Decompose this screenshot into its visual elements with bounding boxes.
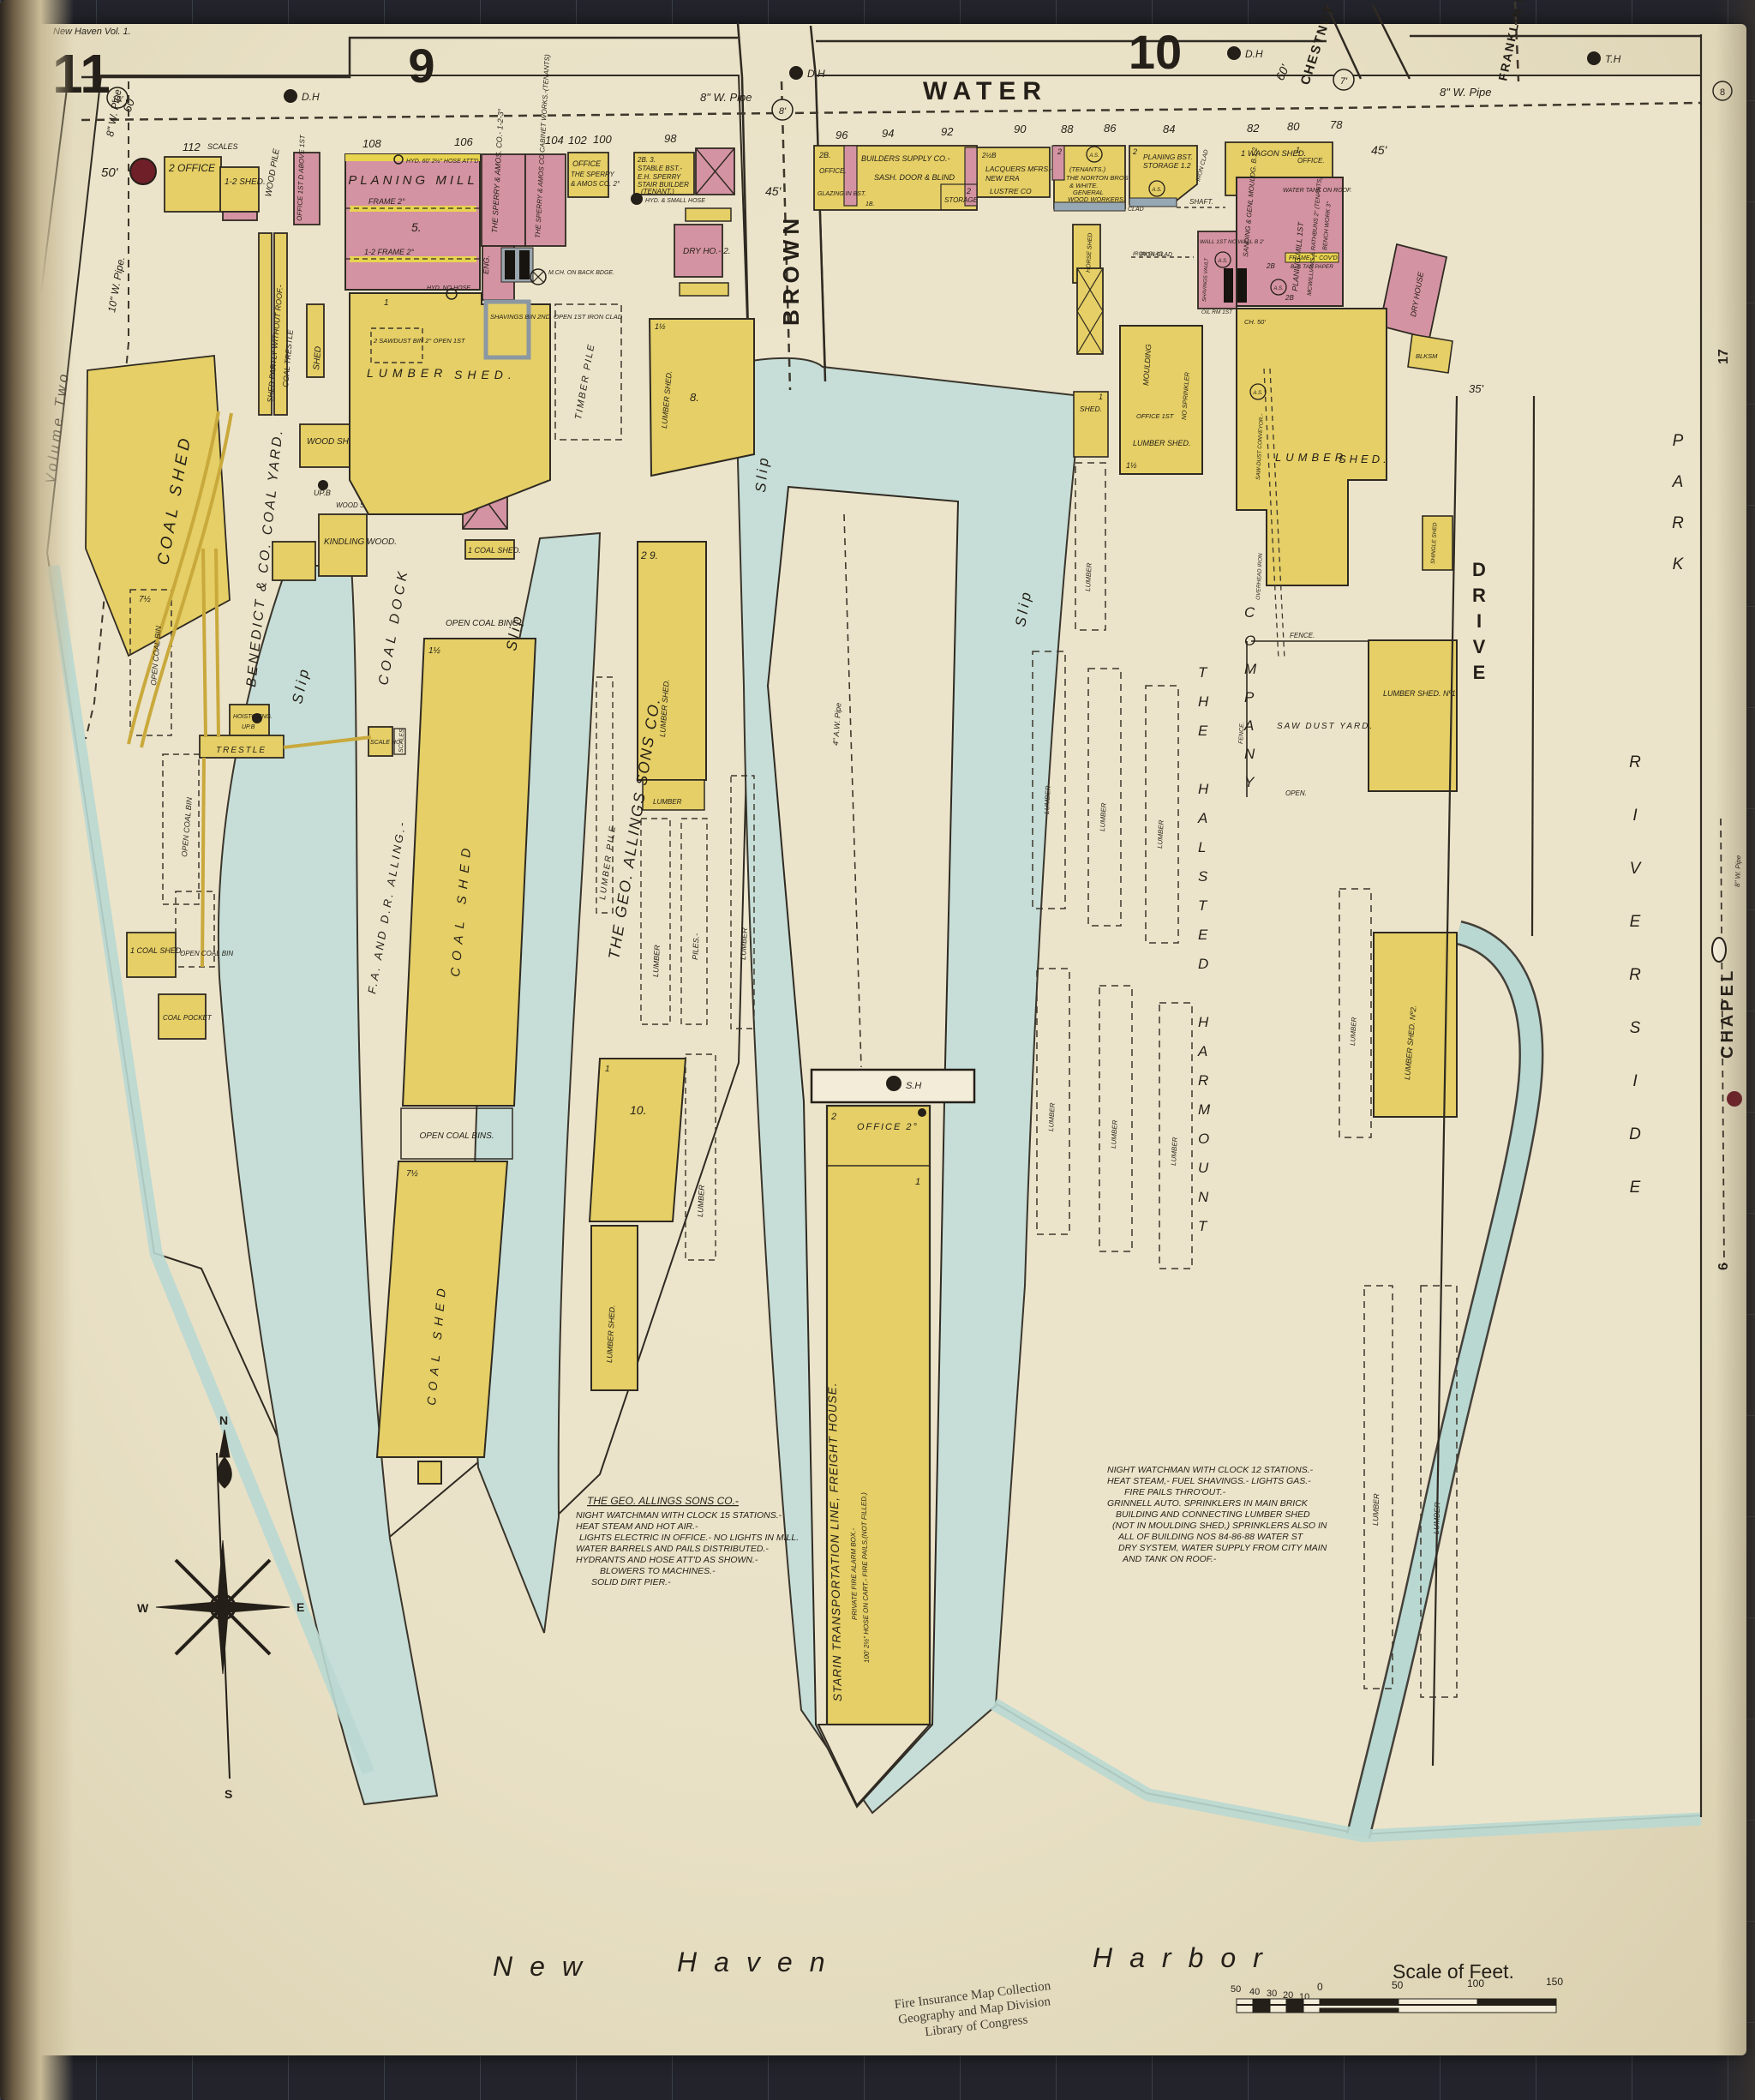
benedict-shed (220, 167, 259, 212)
label: STORAGE 1.2 (1143, 161, 1191, 170)
label: LUMBER SHED. (1133, 439, 1191, 447)
compass-w: W (137, 1601, 149, 1615)
label: LUMBER (653, 798, 682, 806)
label: STORAGE (944, 196, 979, 204)
house-number: 98 (664, 132, 677, 145)
sh-label: S.H (906, 1081, 921, 1091)
label: 1 (384, 298, 389, 308)
house-number: 90 (1014, 123, 1027, 135)
slip-head-shed (273, 542, 315, 580)
label: COAL POCKET (163, 1014, 213, 1022)
house-number: 108 (362, 137, 381, 150)
label: 1½ (1126, 461, 1137, 470)
note-line: GRINNELL AUTO. SPRINKLERS IN MAIN BRICK (1107, 1498, 1309, 1509)
shed-10 (590, 1059, 686, 1221)
label: OFFICE. (1297, 157, 1325, 165)
iron-clad-band-1 (1054, 202, 1125, 211)
label: BUILDERS SUPPLY CO.- (861, 154, 950, 163)
house-number: 82 (1247, 122, 1260, 135)
label: IRON CLAD (1133, 251, 1164, 257)
brown-label: BROWN (778, 213, 804, 326)
label: LUMBER (367, 366, 447, 380)
label: 5. (411, 220, 422, 234)
scale-tick: 40 (1249, 1987, 1260, 1997)
map-canvas: 9 10 WATER 8" W. Pipe 8" W. Pipe D.H D.H… (0, 0, 1755, 2100)
label: OPEN COAL BIN (180, 950, 233, 957)
note-line: NIGHT WATCHMAN WITH CLOCK 15 STATIONS.- (576, 1510, 782, 1521)
label: 2½B (981, 152, 997, 159)
benchmark-circle (130, 159, 156, 184)
house-number: 106 (454, 135, 473, 148)
harbor-label: New Haven Harbor (493, 1942, 1279, 1982)
label: NEW ERA (985, 174, 1020, 183)
label: LUMBER (1371, 1493, 1381, 1526)
label: GLAZING IN BST. (818, 191, 866, 197)
label: SHAVINGS BIN 2ND. OPEN 1ST IRON CLAD (490, 313, 623, 321)
scale-bar-cells (1237, 1999, 1556, 2013)
label: KINDLING WOOD. (324, 537, 397, 547)
small-shed (1074, 392, 1108, 457)
label: LUSTRE CO (990, 187, 1032, 195)
label: 2 (1057, 147, 1062, 156)
hydrant-dh-3-label: D.H (1245, 48, 1263, 60)
label: LACQUERS MFRS.- (985, 165, 1053, 173)
label: LUMBER (1043, 785, 1052, 814)
note-line: BLOWERS TO MACHINES.- (600, 1566, 716, 1576)
house-number: 92 (941, 125, 954, 138)
label: SCALES (207, 142, 238, 151)
label: SCALE HO. (370, 740, 402, 746)
house-number: 84 (1163, 123, 1175, 135)
label: DRY HO.- 2. (683, 247, 731, 256)
label: E.H. SPERRY (638, 173, 681, 181)
label: OFFICE (572, 159, 602, 168)
note-line: AND TANK ON ROOF.- (1122, 1554, 1217, 1564)
note-line: HEAT STEAM,- FUEL SHAVINGS.- LIGHTS GAS.… (1107, 1476, 1311, 1486)
hoist-engine (230, 705, 269, 735)
label: LUMBER (1084, 562, 1093, 591)
as-circle: A.S. (1151, 188, 1161, 193)
label: 1 COAL SHED. (130, 946, 183, 955)
label: WALL 1ST NO WALL B 2' (1200, 239, 1265, 245)
label: & AMOS CO. 2° (571, 180, 620, 188)
scale-tick: 150 (1546, 1976, 1563, 1988)
label: LUMBER (1275, 451, 1347, 464)
label: 7½ (139, 595, 152, 604)
label: FRAME 3° COV'D (1289, 255, 1338, 261)
label: 2 9. (640, 549, 658, 561)
scale-tick: 50 (1231, 1984, 1241, 1995)
label: LUMBER (739, 927, 749, 960)
label: 1 (915, 1177, 920, 1187)
label: 1½ (428, 646, 441, 656)
label: LUMBER (1349, 1017, 1358, 1046)
label: 2B (1266, 262, 1275, 270)
note-line: BUILDING AND CONNECTING LUMBER SHED (1116, 1509, 1310, 1520)
hydrant-dh-1 (284, 89, 297, 103)
label: LUMBER (1110, 1119, 1119, 1149)
label: THE NORTON BROS (1066, 174, 1129, 182)
label: 2 (830, 1112, 836, 1122)
sperry-bldg-1 (482, 154, 525, 246)
scale-bar: Scale of Feet. 50 40 30 20 10 0 50 100 1… (1231, 1960, 1563, 2013)
label: (TENANT.) (641, 188, 674, 195)
label: 8. (690, 391, 699, 404)
house-number: 86 (1104, 122, 1117, 135)
benedict-shed-annex (223, 212, 257, 220)
label: 2 (1132, 147, 1137, 156)
width-45-brown: 45' (765, 184, 782, 198)
label: LUMBER (1099, 802, 1108, 831)
label: 35' (1469, 382, 1483, 395)
note-line: (NOT IN MOULDING SHED,) SPRINKLERS ALSO … (1112, 1521, 1327, 1531)
label: WOOD WORKERS. (1068, 195, 1125, 203)
as-circle: A.S. (1217, 259, 1227, 264)
pipe-label-water-1: 8" W. Pipe (700, 91, 752, 104)
pipe-label-water-2: 8" W. Pipe (1440, 86, 1492, 99)
label: OFFICE 2° (857, 1122, 919, 1132)
note-line: ALL OF BUILDING NOS 84-86-88 WATER ST (1117, 1532, 1304, 1542)
label: (TENANTS.) (1069, 165, 1106, 173)
label: THE SPERRY (571, 171, 614, 178)
water-street-label: WATER (923, 77, 1048, 105)
section-number-right: 10 (1129, 25, 1182, 79)
label: TRESTLE (216, 746, 267, 755)
scale-tick: 30 (1267, 1989, 1277, 1999)
label: HYD. 60' 2½" HOSE ATT'D (406, 158, 479, 165)
label: PLANING MILL (348, 173, 477, 188)
label: 1 (1296, 146, 1300, 154)
compass-n: N (219, 1413, 228, 1427)
sperry-bldg-2 (525, 154, 566, 246)
strip-shed-2 (680, 283, 728, 296)
label: PLANING BST. (1143, 153, 1193, 161)
note-line: NIGHT WATCHMAN WITH CLOCK 12 STATIONS.- (1107, 1465, 1314, 1475)
label: 10. (630, 1103, 646, 1117)
page-curl-shadow (1716, 0, 1755, 2100)
scale-title: Scale of Feet. (1393, 1960, 1514, 1983)
label: 1 COAL SHED. (468, 546, 521, 555)
scale-tick: 100 (1467, 1977, 1484, 1989)
main-size-7-label: 7' (1340, 76, 1348, 87)
label: STABLE BST.- (638, 165, 682, 172)
note-line: DRY SYSTEM, WATER SUPPLY FROM CITY MAIN (1118, 1543, 1327, 1553)
moulding-shed (1120, 326, 1202, 474)
label: LUMBER SHED. Nº1. (1383, 689, 1458, 698)
house-number: 78 (1330, 118, 1343, 131)
label: SHED. (1080, 405, 1102, 413)
label: PRIVATE FIRE ALARM BOX.- (849, 1528, 859, 1621)
note-line: LIGHTS ELECTRIC IN OFFICE.- NO LIGHTS IN… (579, 1533, 799, 1543)
compass-s: S (225, 1787, 232, 1801)
label: FENCE. (1290, 632, 1315, 639)
compass-rose: N W E S (137, 1413, 304, 1801)
main-size-8-label: 8' (779, 106, 787, 117)
as-circle: A.S. (1273, 286, 1283, 291)
label: OIL RM 1ST (1201, 309, 1233, 315)
width-45-right: 45' (1371, 143, 1388, 157)
compass-e: E (296, 1600, 304, 1614)
label: HYD. NO HOSE (427, 285, 470, 291)
note-line: WATER BARRELS AND PAILS DISTRIBUTED.- (576, 1544, 769, 1554)
label: 1-2 FRAME 2° (364, 248, 415, 256)
label: 1 (1099, 393, 1103, 401)
label: LUMBER (1156, 819, 1165, 849)
harbor-word: Harbor (1093, 1942, 1279, 1973)
label: SAW DUST YARD. (1277, 722, 1374, 731)
sanborn-map-photo: 9 10 WATER 8" W. Pipe 8" W. Pipe D.H D.H… (0, 0, 1755, 2100)
hydrant-dh-2 (789, 66, 803, 80)
x-shed-tall (1077, 268, 1103, 354)
tip-shed (418, 1461, 441, 1484)
label: 7½ (406, 1169, 419, 1179)
loc-stamp: Fire Insurance Map Collection Geography … (894, 1979, 1056, 2043)
label: LUMBER (1170, 1137, 1179, 1166)
franklin-label: FRANKLIN ST. (1495, 0, 1530, 82)
label: PILES.- (691, 933, 701, 960)
label: OFFICE 1ST (1136, 412, 1175, 420)
house-number: 102 (568, 134, 587, 147)
house-number: 94 (882, 127, 894, 140)
label: BLKSM (1416, 352, 1438, 360)
note-line: SOLID DIRT PIER.- (591, 1577, 671, 1587)
label: LUMBER (651, 945, 662, 977)
label: SHAFT. (1189, 198, 1213, 206)
harbor-word: New (493, 1951, 599, 1982)
section-number-left: 9 (408, 39, 434, 93)
label: CLAD (1128, 207, 1144, 213)
slip-label: Slip (752, 454, 772, 494)
label: HOISTG ENG. (233, 714, 273, 720)
label: OFFICE. (819, 167, 847, 175)
as-circle: A.S. (1088, 153, 1099, 159)
note-line: FIRE PAILS THRO'OUT.- (1124, 1487, 1226, 1497)
halsted-note: NIGHT WATCHMAN WITH CLOCK 12 STATIONS.- … (1107, 1465, 1327, 1564)
label: HYD. & SMALL HOSE (645, 198, 705, 204)
shavings-bin (486, 302, 529, 357)
small-coal-shed (127, 933, 176, 977)
label: SHED. (454, 368, 517, 381)
note-line: HYDRANTS AND HOSE ATT'D AS SHOWN.- (576, 1555, 758, 1565)
book-spine (0, 0, 74, 2100)
harbor-word: Haven (677, 1947, 842, 1977)
strip-shed-1 (686, 208, 731, 221)
house-number: 88 (1061, 123, 1074, 135)
house-number: 80 (1287, 120, 1300, 133)
label: OPEN COAL BINS. (419, 1131, 494, 1141)
label: 2 SAWDUST BIN 2° OPEN 1ST (373, 337, 466, 345)
hydrant-th-label: T.H (1605, 53, 1621, 65)
label: ENG. (482, 255, 491, 274)
label: SHED. (1339, 453, 1390, 465)
scale-tick: 0 (1317, 1981, 1323, 1993)
label: 2 OFFICE (168, 162, 216, 174)
house-number: 104 (545, 134, 564, 147)
sawdust-bin (371, 328, 422, 363)
label: 2B. (818, 151, 831, 159)
allings-note: THE GEO. ALLINGS SONS CO.- NIGHT WATCHMA… (576, 1495, 799, 1587)
label: LUMBER (696, 1185, 706, 1217)
note-line: HEAT STEAM AND HOT AIR.- (576, 1521, 698, 1532)
label: FRAME 2° (368, 197, 405, 206)
scale-tick: 50 (1392, 1979, 1404, 1991)
label: LUMBER (1047, 1102, 1057, 1131)
house-number: 112 (183, 141, 201, 153)
note-title: THE GEO. ALLINGS SONS CO.- (587, 1495, 739, 1507)
label: UP.B (314, 489, 331, 497)
label: 1B. (866, 201, 875, 207)
label: OPEN. (1285, 789, 1307, 797)
hydrant-dh-3 (1227, 46, 1241, 60)
label: 2B (1285, 294, 1294, 302)
width-50: 50' (101, 165, 119, 180)
house-number: 96 (836, 129, 848, 141)
label: 1 (605, 1065, 610, 1074)
label: B. & TAR PAPER (1291, 264, 1333, 270)
label: CH. 50' (1244, 318, 1266, 326)
label: 1-2 SHED. (225, 177, 266, 187)
label: SASH. DOOR & BLIND (874, 173, 955, 182)
label: 2 (966, 187, 971, 195)
hydrant-dh-2-label: D.H (807, 68, 825, 80)
label: 2B. 3. (637, 156, 656, 164)
iron-clad-band-2 (1129, 198, 1177, 207)
label: 1½ (655, 322, 666, 331)
hydrant-dh-1-label: D.H (302, 91, 320, 103)
label: M.CH. ON BACK BDGE. (548, 270, 614, 276)
as-circle: A.S. (1252, 391, 1262, 396)
house-number: 100 (593, 133, 612, 146)
lumber-shed-no1 (1369, 640, 1457, 791)
label: UP.B (242, 724, 255, 730)
hydrant-th (1587, 51, 1601, 65)
